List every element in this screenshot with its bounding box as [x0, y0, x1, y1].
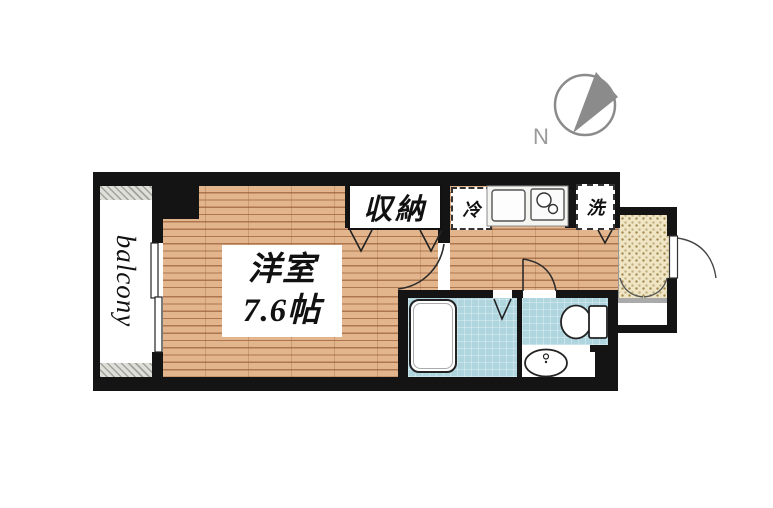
entrance-door-icon — [670, 236, 717, 278]
wall-bath-toilet-divider — [517, 290, 522, 377]
wall-toilet-top — [556, 290, 618, 298]
genkan-floor — [618, 215, 669, 298]
washroom-floor — [522, 345, 595, 377]
balcony-label: balcony — [104, 196, 148, 366]
washer-label: 洗 — [587, 194, 605, 220]
wall-toilet-right — [608, 290, 618, 347]
pillar-top-left — [152, 172, 199, 219]
fridge-label: 冷 — [463, 196, 481, 222]
genkan-threshold — [618, 298, 668, 303]
wall-toilet-basin-divider — [590, 345, 608, 352]
room-size: 7.6帖 — [243, 291, 321, 332]
room-name: 洋室 — [248, 250, 316, 291]
compass-north-label: N — [533, 124, 549, 150]
bath-floor — [408, 298, 517, 377]
fridge-box: 冷 — [451, 187, 492, 230]
entry-hall-floor — [618, 303, 667, 325]
wall-right-above-door — [667, 207, 677, 236]
room-label-box: 洋室 7.6帖 — [222, 245, 342, 337]
closet-label: 収納 — [363, 186, 427, 228]
wall-bathtub-left — [398, 290, 408, 377]
wall-bottom — [93, 377, 618, 391]
wall-balcony-outer — [93, 172, 100, 391]
toilet-floor — [522, 298, 608, 345]
closet-box: 収納 — [348, 184, 442, 230]
wall-washer-left — [565, 172, 576, 228]
compass-icon — [555, 72, 618, 135]
balcony-window-sliding — [151, 243, 162, 352]
washer-box: 洗 — [576, 184, 615, 230]
floorplan-canvas: 収納 冷 洗 洋室 7.6帖 balcony N — [0, 0, 773, 508]
wall-bath-top-left — [398, 290, 493, 298]
wall-room-left-lower — [152, 352, 163, 391]
wall-bottom-right — [610, 325, 677, 333]
